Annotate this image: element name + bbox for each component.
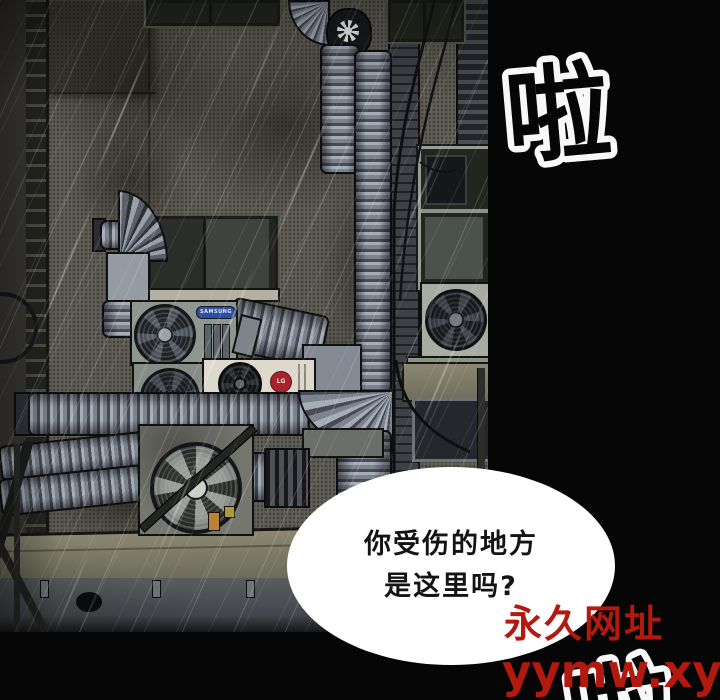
watermark-url: yymw.xyz xyxy=(502,645,720,698)
cable xyxy=(400,0,458,300)
speech-line-1: 你受伤的地方 xyxy=(364,524,538,566)
cable xyxy=(396,360,470,452)
speech-line-2: 是这里吗? xyxy=(384,566,518,608)
cable xyxy=(420,162,456,172)
sfx-top: 啦 xyxy=(468,28,648,198)
webtoon-page: SAMSUNG LG xyxy=(0,0,720,700)
sfx-top-text: 啦 xyxy=(501,49,615,180)
watermark-site-name: 永久网址 xyxy=(504,593,664,648)
